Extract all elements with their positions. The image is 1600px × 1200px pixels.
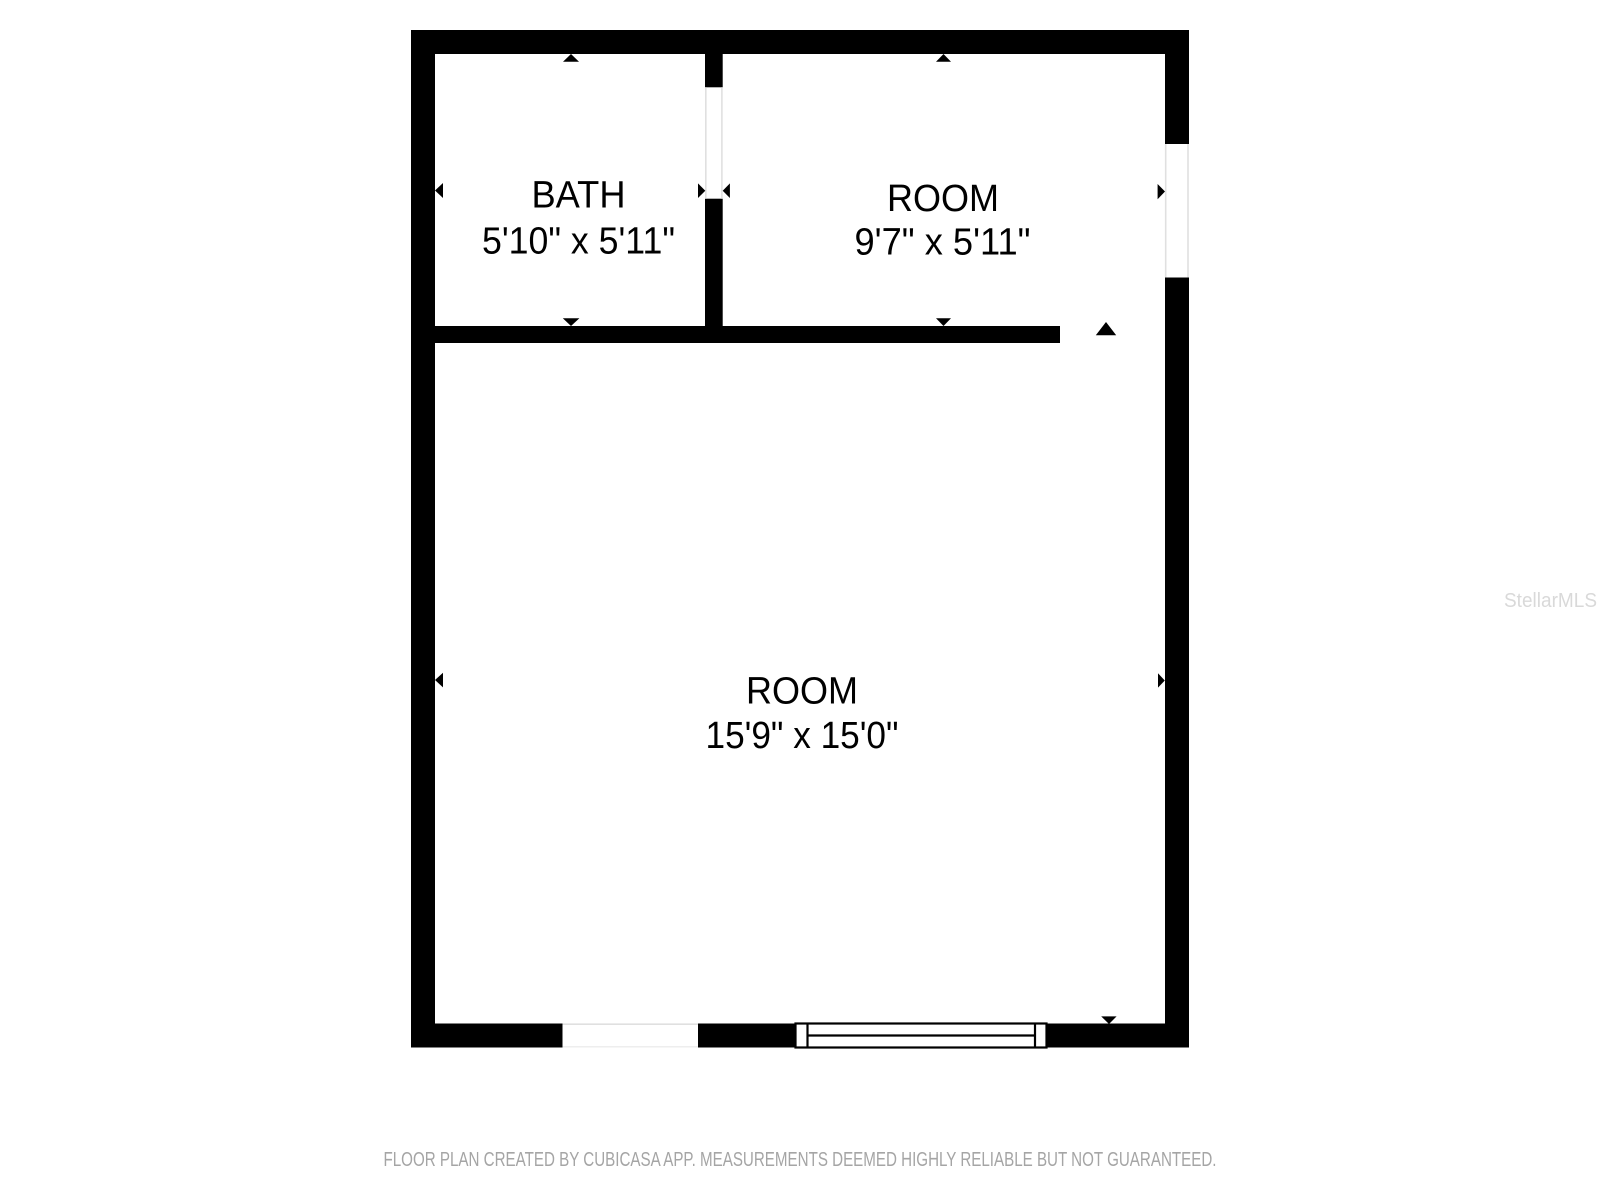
- svg-text:5'10" x 5'11": 5'10" x 5'11": [482, 221, 675, 263]
- svg-text:15'9" x 15'0": 15'9" x 15'0": [706, 715, 899, 757]
- svg-text:9'7" x 5'11": 9'7" x 5'11": [855, 222, 1031, 264]
- svg-text:FLOOR PLAN CREATED BY CUBICASA: FLOOR PLAN CREATED BY CUBICASA APP. MEAS…: [384, 1149, 1217, 1171]
- svg-text:ROOM: ROOM: [746, 671, 858, 713]
- svg-text:BATH: BATH: [532, 175, 626, 217]
- svg-text:StellarMLS: StellarMLS: [1504, 590, 1597, 612]
- svg-text:ROOM: ROOM: [887, 178, 999, 220]
